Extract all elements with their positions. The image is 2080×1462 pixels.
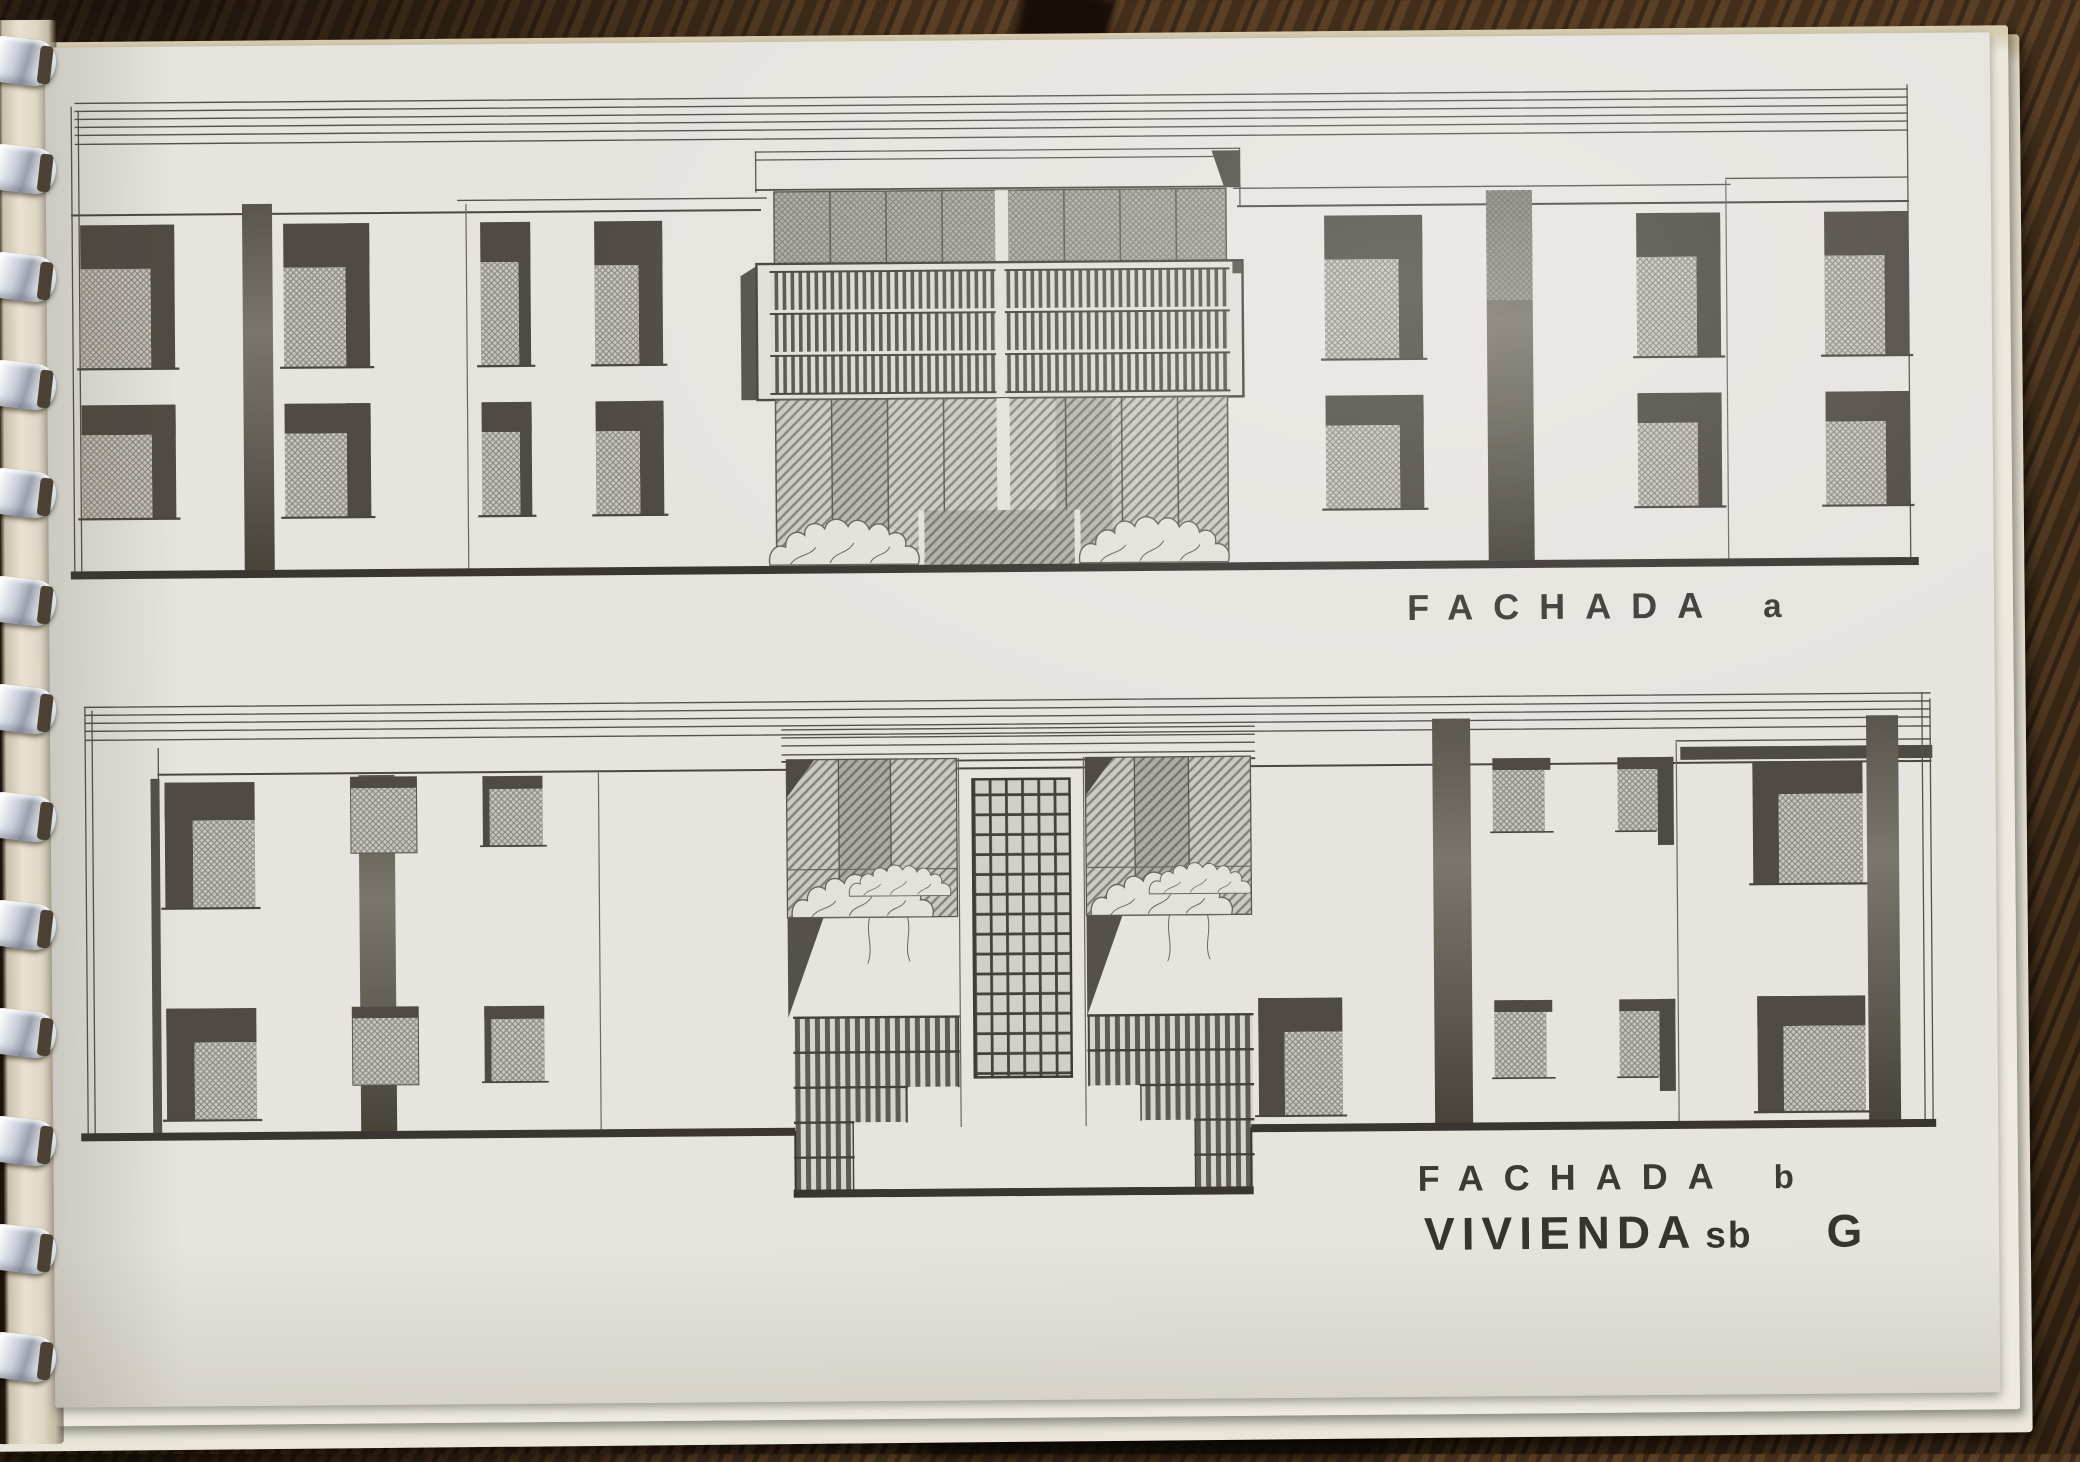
stepped-slat-wall-right (1088, 1014, 1253, 1189)
drawing-area: FACHADAa FACHADAb VIVIENDAsbG (0, 0, 2080, 1462)
binding-comb (0, 1222, 58, 1276)
facade-b-patio-right (1085, 756, 1253, 1189)
perforated-concrete-screen (958, 758, 1086, 1127)
caption-facade-a-word: FACHADA (1407, 584, 1723, 627)
binding-comb (0, 34, 58, 88)
facade-a-elevation (67, 85, 1919, 579)
caption-facade-b-suffix: b (1773, 1158, 1793, 1195)
binding-comb (0, 574, 58, 628)
caption-dwelling-subtype: sb (1705, 1214, 1753, 1255)
photo-of-booklet: { "scene": { "subject": "Spiral-bound bo… (0, 0, 2080, 1454)
facade-b-small-windows-left (480, 776, 547, 1083)
binding-comb (0, 250, 58, 304)
facade-b-pier-left (350, 775, 419, 1134)
facade-b-setback-windows (1749, 761, 1869, 1112)
binding-comb (0, 682, 58, 736)
facade-b-left-windows (161, 782, 261, 1121)
binding-comb (0, 1114, 58, 1168)
caption-facade-a-suffix: a (1763, 587, 1782, 624)
facade-b-pier-mid (1432, 718, 1473, 1124)
facade-b-window-mid-right (1255, 997, 1346, 1116)
balcony-railing (770, 266, 1229, 396)
caption-facade-b: FACHADAb (1417, 1155, 1793, 1200)
binding-comb (0, 466, 58, 520)
binding-comb (0, 142, 58, 196)
binding-comb (0, 358, 58, 412)
stepped-slat-wall-left (794, 1017, 959, 1192)
spiral-binding (0, 0, 120, 1454)
caption-dwelling-unit: G (1826, 1204, 1862, 1256)
binding-comb (0, 790, 58, 844)
facade-a-center-balcony (740, 148, 1245, 566)
caption-facade-b-word: FACHADA (1417, 1155, 1733, 1198)
facade-b-patio-left (786, 759, 959, 1192)
facade-b-elevation (78, 693, 1937, 1204)
binding-comb (0, 1330, 58, 1384)
facade-b-pier-right (1866, 715, 1901, 1121)
caption-facade-a: FACHADAa (1407, 584, 1782, 629)
booklet-page: FACHADAa FACHADAb VIVIENDAsbG (45, 32, 2001, 1407)
caption-dwelling: VIVIENDAsbG (1424, 1203, 1863, 1260)
binding-comb (0, 1006, 58, 1060)
facade-b-small-windows-right (1490, 757, 1676, 1092)
binding-comb (0, 898, 58, 952)
caption-dwelling-word: VIVIENDA (1424, 1206, 1698, 1260)
